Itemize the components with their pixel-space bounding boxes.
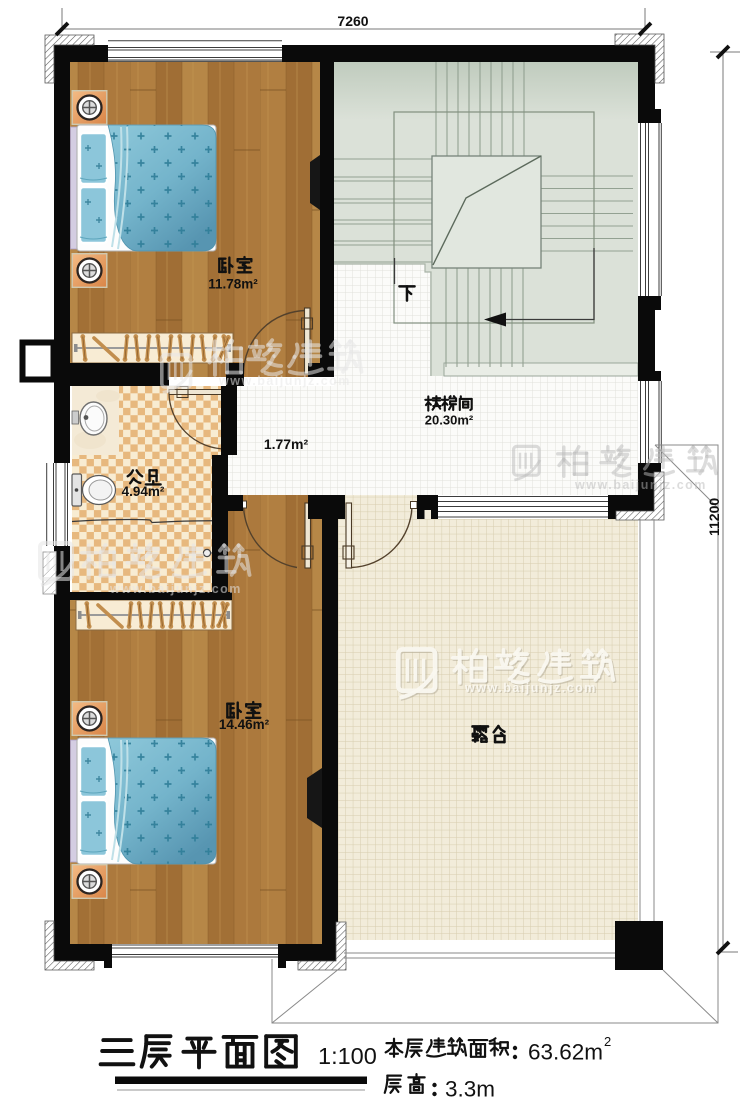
- svg-text:11.78m²: 11.78m²: [208, 277, 258, 292]
- svg-text:www.baijunjz.com: www.baijunjz.com: [574, 478, 707, 492]
- svg-text:11200: 11200: [706, 498, 722, 536]
- svg-text:1:100: 1:100: [318, 1043, 377, 1069]
- svg-text:3.3m: 3.3m: [445, 1077, 495, 1102]
- svg-text:www.baijunjz.com: www.baijunjz.com: [218, 374, 351, 388]
- svg-text:4.94m²: 4.94m²: [122, 484, 165, 499]
- svg-text:www.baijunjz.com: www.baijunjz.com: [109, 582, 242, 596]
- svg-text:www.baijunjz.com: www.baijunjz.com: [464, 681, 597, 695]
- svg-text:20.30m²: 20.30m²: [425, 413, 474, 428]
- svg-text:1.77m²: 1.77m²: [264, 436, 309, 452]
- svg-text:14.46m²: 14.46m²: [219, 717, 270, 732]
- svg-text:63.62m: 63.62m: [528, 1040, 603, 1065]
- svg-text:2: 2: [604, 1034, 611, 1049]
- svg-text:7260: 7260: [337, 13, 368, 29]
